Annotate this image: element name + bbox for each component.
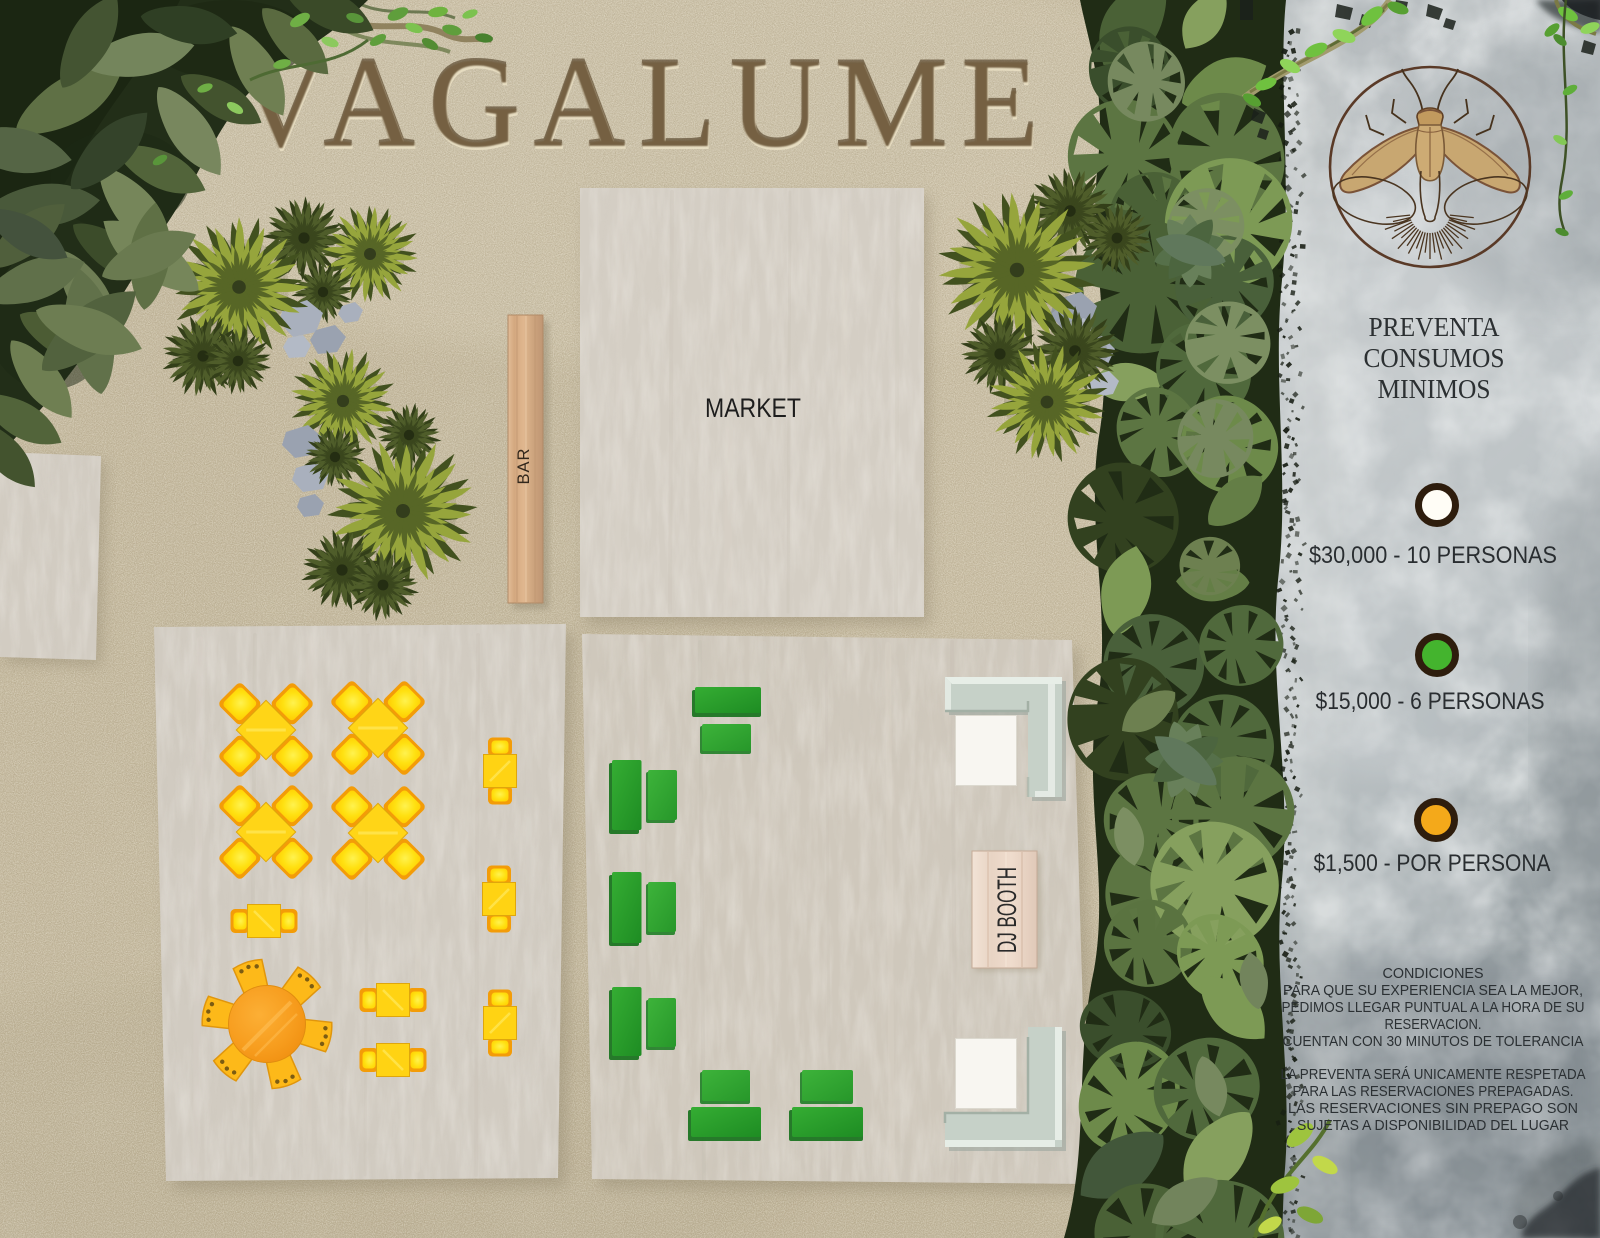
svg-text:LA PREVENTA SERÁ UNICAMENTE RE: LA PREVENTA SERÁ UNICAMENTE RESPETADA [1281, 1066, 1587, 1083]
svg-text:PARA LAS RESERVACIONES PREPAGA: PARA LAS RESERVACIONES PREPAGADAS. [1293, 1083, 1574, 1100]
svg-text:$1,500 - POR PERSONA: $1,500 - POR PERSONA [1314, 850, 1552, 877]
svg-text:PREVENTA: PREVENTA [1369, 312, 1500, 342]
svg-text:$15,000 - 6 PERSONAS: $15,000 - 6 PERSONAS [1316, 688, 1545, 715]
svg-text:RESERVACION.: RESERVACION. [1385, 1016, 1482, 1033]
svg-text:$30,000 - 10 PERSONAS: $30,000 - 10 PERSONAS [1309, 542, 1557, 569]
svg-text:VAGALUME: VAGALUME [234, 32, 1051, 174]
svg-text:MINIMOS: MINIMOS [1378, 374, 1491, 404]
svg-text:CONDICIONES: CONDICIONES [1383, 965, 1484, 982]
svg-text:LAS RESERVACIONES SIN PREPAGO: LAS RESERVACIONES SIN PREPAGO SON [1288, 1100, 1578, 1117]
svg-text:PARA QUE SU EXPERIENCIA SEA LA: PARA QUE SU EXPERIENCIA SEA LA MEJOR, [1283, 982, 1583, 999]
svg-text:MARKET: MARKET [705, 393, 801, 423]
svg-text:CUENTAN CON 30 MINUTOS DE TOLE: CUENTAN CON 30 MINUTOS DE TOLERANCIA [1283, 1033, 1585, 1050]
svg-text:CONSUMOS: CONSUMOS [1364, 343, 1505, 373]
svg-text:PEDIMOS LLEGAR PUNTUAL A LA HO: PEDIMOS LLEGAR PUNTUAL A LA HORA DE SU [1282, 999, 1585, 1016]
svg-text:DJ BOOTH: DJ BOOTH [992, 867, 1022, 953]
svg-text:BAR: BAR [515, 448, 533, 485]
svg-text:SUJETAS A DISPONIBILIDAD DEL L: SUJETAS A DISPONIBILIDAD DEL LUGAR [1297, 1117, 1569, 1134]
